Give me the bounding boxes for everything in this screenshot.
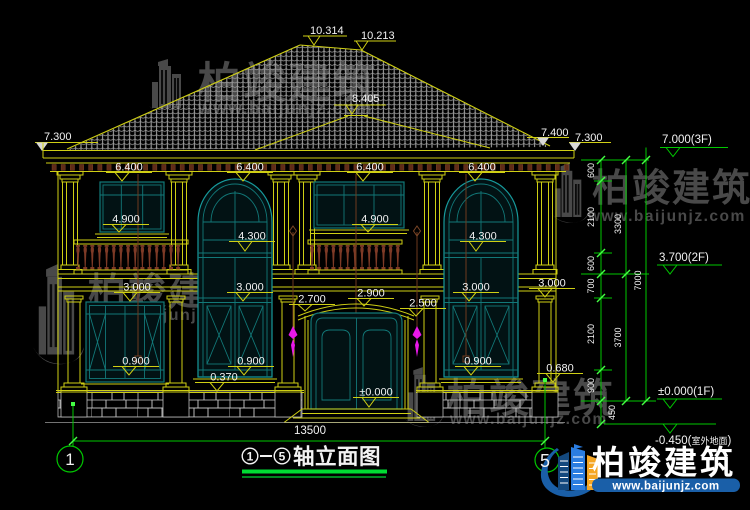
svg-text:6.400: 6.400 [236, 162, 264, 174]
svg-text:0.900: 0.900 [122, 356, 150, 368]
svg-text:2100: 2100 [586, 207, 596, 227]
svg-text:13500: 13500 [294, 425, 326, 437]
svg-text:5: 5 [279, 450, 286, 464]
svg-text:5: 5 [540, 451, 550, 471]
svg-text:10.314: 10.314 [310, 25, 344, 37]
svg-text:3.700(2F): 3.700(2F) [659, 252, 709, 264]
svg-text:www.baijunjz.com: www.baijunjz.com [611, 481, 719, 493]
svg-text:700: 700 [586, 278, 596, 293]
svg-text:7000: 7000 [633, 270, 643, 290]
svg-text:±0.000(1F): ±0.000(1F) [658, 386, 714, 398]
svg-text:0.900: 0.900 [237, 356, 265, 368]
svg-text:4.300: 4.300 [469, 231, 497, 243]
svg-text:轴立面图: 轴立面图 [293, 444, 381, 469]
svg-text:2.900: 2.900 [357, 288, 385, 300]
svg-text:2.500: 2.500 [409, 298, 437, 310]
svg-text:0.900: 0.900 [464, 356, 492, 368]
svg-text:10.213: 10.213 [361, 30, 395, 42]
svg-text:6.400: 6.400 [356, 162, 384, 174]
svg-text:3300: 3300 [613, 214, 623, 234]
svg-text:3.000: 3.000 [462, 282, 490, 294]
svg-text:3700: 3700 [613, 327, 623, 347]
svg-text:4.900: 4.900 [112, 214, 140, 226]
svg-text:8.405: 8.405 [352, 93, 380, 105]
svg-text:1: 1 [247, 450, 254, 464]
svg-text:4.300: 4.300 [238, 231, 266, 243]
svg-text:7.300: 7.300 [44, 131, 72, 143]
svg-text:6.400: 6.400 [115, 162, 143, 174]
svg-text:2100: 2100 [586, 324, 596, 344]
svg-text:3.000: 3.000 [123, 282, 151, 294]
svg-text:4.900: 4.900 [361, 214, 389, 226]
svg-text:柏竣建筑: 柏竣建筑 [592, 444, 736, 481]
svg-text:6.400: 6.400 [468, 162, 496, 174]
svg-text:900: 900 [586, 378, 596, 393]
svg-text:3.000: 3.000 [236, 282, 264, 294]
svg-text:柏竣建筑: 柏竣建筑 [592, 168, 750, 210]
svg-text:450: 450 [607, 405, 617, 420]
svg-text:1: 1 [65, 450, 74, 469]
svg-text:7.000(3F): 7.000(3F) [662, 134, 712, 146]
svg-text:600: 600 [586, 163, 596, 178]
svg-text:±0.000: ±0.000 [359, 387, 393, 399]
svg-text:600: 600 [586, 256, 596, 271]
svg-text:0.680: 0.680 [546, 363, 574, 375]
svg-text:0.370: 0.370 [210, 372, 238, 384]
svg-text:3.000: 3.000 [538, 278, 566, 290]
svg-text:2.700: 2.700 [298, 294, 326, 306]
svg-text:www.baijunjz.com: www.baijunjz.com [587, 208, 746, 225]
